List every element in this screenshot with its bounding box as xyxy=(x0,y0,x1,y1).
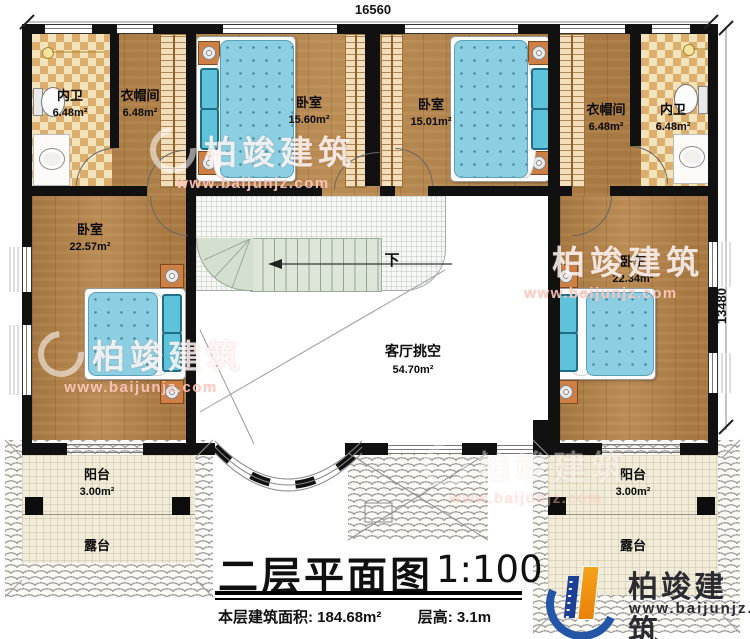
wall-segment xyxy=(625,24,652,34)
window xyxy=(708,242,718,287)
column xyxy=(172,497,190,515)
sink-basin-icon xyxy=(679,146,705,168)
balcony-door xyxy=(602,444,680,453)
wall-segment xyxy=(22,443,67,455)
toilet-tank xyxy=(698,86,708,114)
window xyxy=(560,24,625,34)
mattress xyxy=(220,40,294,178)
pillow xyxy=(200,68,219,110)
balcony-divider-right xyxy=(548,514,718,515)
wall-segment xyxy=(610,186,718,196)
room-label-bathroom-right: 内卫6.48m² xyxy=(656,102,691,134)
mattress xyxy=(88,292,158,376)
brand-url: www.baijunjz.com xyxy=(629,600,750,617)
pillow xyxy=(162,294,182,334)
floor-area-text: 本层建筑面积: 184.68m² xyxy=(218,609,381,626)
wall-segment xyxy=(110,34,119,148)
mattress xyxy=(454,40,528,178)
pillow xyxy=(200,108,219,150)
nightstand xyxy=(160,380,184,404)
wall-segment xyxy=(186,34,196,186)
wall-segment xyxy=(533,420,548,455)
room-label-terrace-right: 露台 xyxy=(620,538,646,554)
column xyxy=(548,497,566,515)
title-underline-thin xyxy=(215,598,522,600)
pillow xyxy=(162,332,182,372)
wall-segment xyxy=(380,186,395,196)
plan-scale: 1:100 xyxy=(436,548,543,591)
stair-down-label: 下 xyxy=(384,252,399,270)
stair-direction-arrow xyxy=(268,259,282,269)
wardrobe xyxy=(559,34,585,188)
room-label-bedroom-mid-left: 卧室22.57m² xyxy=(70,222,111,254)
nightstand xyxy=(528,41,550,65)
window xyxy=(497,445,533,454)
shower-head-icon xyxy=(683,44,695,56)
window xyxy=(405,24,518,34)
pillow xyxy=(558,332,578,372)
wall-segment xyxy=(518,24,560,34)
wall-segment xyxy=(548,196,560,443)
window xyxy=(708,353,718,393)
window xyxy=(22,247,32,292)
balcony-divider-left xyxy=(22,514,195,515)
wall-segment xyxy=(630,34,641,146)
nightstand xyxy=(160,264,184,288)
window xyxy=(652,24,690,34)
wall-segment xyxy=(337,24,405,34)
room-label-cloakroom-left: 衣帽间6.48m² xyxy=(120,88,159,120)
title-underline xyxy=(215,591,522,595)
window xyxy=(45,24,92,34)
pillow xyxy=(558,294,578,334)
shower-head-icon xyxy=(42,47,54,59)
wall-segment xyxy=(92,24,117,34)
wall-segment xyxy=(708,24,718,242)
room-label-balcony-left: 阳台3.00m² xyxy=(80,467,115,499)
floor-plan-canvas: 内卫6.48m² 衣帽间6.48m² 卧室15.60m² 卧室15.01m² 衣… xyxy=(0,0,750,639)
nightstand xyxy=(198,41,220,65)
wall-segment xyxy=(548,34,560,186)
wall-segment xyxy=(548,443,602,455)
wall-segment xyxy=(462,443,497,455)
balcony-door xyxy=(67,444,143,453)
window xyxy=(388,445,462,454)
wall-segment xyxy=(428,186,572,196)
wall-segment xyxy=(22,186,147,196)
room-label-terrace-left: 露台 xyxy=(84,538,110,554)
center-bay-roof xyxy=(348,453,488,540)
dimension-top: 16560 xyxy=(355,2,391,17)
mattress xyxy=(586,292,654,376)
wall-segment xyxy=(680,443,718,455)
floor-height-text: 层高: 3.1m xyxy=(418,609,491,626)
wall-segment xyxy=(143,443,215,455)
window xyxy=(22,325,32,395)
room-label-bathroom-left: 内卫6.48m² xyxy=(53,88,88,120)
room-label-living-void: 客厅挑空54.70m² xyxy=(385,343,441,377)
room-label-cloakroom-right: 衣帽间6.48m² xyxy=(586,102,625,134)
room-label-balcony-right: 阳台3.00m² xyxy=(616,467,651,499)
plan-info: 本层建筑面积: 184.68m² 层高: 3.1m xyxy=(218,606,491,627)
sink-basin-icon xyxy=(39,148,65,170)
wall-segment xyxy=(186,186,322,196)
wall-segment xyxy=(22,292,32,325)
window xyxy=(117,24,153,34)
column xyxy=(25,497,43,515)
column xyxy=(697,497,715,515)
watermark-logo-icon xyxy=(489,228,554,293)
wall-segment xyxy=(345,443,388,455)
dimension-right: 13480 xyxy=(714,288,729,324)
wall-segment xyxy=(153,24,223,34)
room-label-bedroom-top-right: 卧室15.01m² xyxy=(411,97,452,129)
room-label-bedroom-top-left: 卧室15.60m² xyxy=(289,95,330,127)
wall-segment xyxy=(22,24,32,247)
window xyxy=(223,24,337,34)
room-label-bedroom-mid-right: 卧室22.34m² xyxy=(613,254,654,286)
